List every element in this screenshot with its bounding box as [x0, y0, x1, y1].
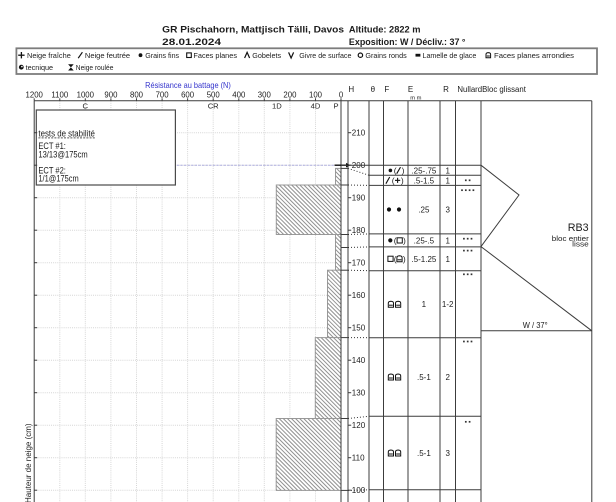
svg-text:140: 140 — [352, 356, 366, 365]
svg-text:210: 210 — [352, 129, 366, 138]
svg-text:4D: 4D — [311, 102, 321, 111]
svg-text:900: 900 — [104, 91, 118, 100]
svg-text:H: H — [348, 85, 354, 94]
svg-text:.5-1: .5-1 — [417, 449, 431, 458]
svg-text:lisse: lisse — [572, 240, 589, 249]
svg-text:RB3: RB3 — [568, 222, 589, 234]
svg-text:400: 400 — [232, 91, 246, 100]
svg-text:.25-.5: .25-.5 — [414, 236, 435, 245]
svg-text:1: 1 — [445, 236, 450, 245]
svg-text:Neige feutrée: Neige feutrée — [85, 51, 130, 60]
svg-text:1: 1 — [422, 300, 427, 309]
svg-text:1100: 1100 — [51, 91, 68, 100]
svg-text:.25-.75: .25-.75 — [411, 166, 436, 175]
svg-text:): ) — [401, 175, 404, 185]
svg-text:Lamelle de glace: Lamelle de glace — [423, 51, 477, 60]
svg-text:GR Pischahorn, Mattjisch Tälli: GR Pischahorn, Mattjisch Tälli, Davos — [162, 24, 344, 35]
svg-text:200: 200 — [283, 91, 297, 100]
svg-text:.5-1.25: .5-1.25 — [411, 255, 436, 264]
svg-text:(: ( — [394, 165, 397, 175]
svg-text:): ) — [402, 165, 405, 175]
svg-text:700: 700 — [156, 91, 170, 100]
svg-text:(: ( — [394, 254, 397, 264]
svg-text:150: 150 — [352, 324, 366, 333]
svg-text:300: 300 — [258, 91, 272, 100]
svg-text:.5-1: .5-1 — [417, 373, 431, 382]
svg-text:170: 170 — [352, 259, 366, 268]
svg-text:0: 0 — [339, 91, 344, 100]
svg-text:500: 500 — [207, 91, 221, 100]
svg-text:Hauteur de neige (cm): Hauteur de neige (cm) — [24, 423, 33, 502]
svg-text:1: 1 — [445, 255, 450, 264]
svg-text:Gobelets: Gobelets — [252, 51, 281, 60]
svg-text:600: 600 — [181, 91, 195, 100]
svg-text:.5-1.5: .5-1.5 — [414, 176, 435, 185]
svg-text:NullardBloc glissant: NullardBloc glissant — [457, 85, 526, 94]
svg-text:): ) — [403, 254, 406, 264]
svg-text:tecnique: tecnique — [26, 63, 53, 72]
svg-text:3: 3 — [445, 206, 450, 215]
svg-text:(: ( — [392, 175, 395, 185]
svg-text:R: R — [443, 85, 449, 94]
svg-text:1000: 1000 — [77, 91, 95, 100]
svg-text:800: 800 — [130, 91, 144, 100]
svg-text:W / 37°: W / 37° — [523, 321, 548, 330]
svg-text:1/1@175cm: 1/1@175cm — [38, 173, 78, 183]
svg-text:Neige fraîche: Neige fraîche — [27, 51, 71, 60]
svg-text:CR: CR — [208, 102, 219, 111]
svg-text:): ) — [403, 235, 406, 245]
svg-text:1-2: 1-2 — [442, 300, 454, 309]
svg-text:Grains fins: Grains fins — [145, 51, 179, 60]
svg-text:160: 160 — [352, 291, 366, 300]
svg-text:Altitude: 2822 m: Altitude: 2822 m — [349, 24, 421, 35]
svg-text:190: 190 — [352, 194, 366, 203]
svg-text:1: 1 — [445, 176, 450, 185]
svg-text:1D: 1D — [272, 102, 282, 111]
svg-text:θ: θ — [371, 85, 376, 94]
svg-text:13/13@175cm: 13/13@175cm — [38, 149, 88, 159]
svg-text:C: C — [82, 102, 88, 111]
svg-text:Givre de surface: Givre de surface — [299, 51, 351, 60]
svg-text:tests de stabilité: tests de stabilité — [38, 128, 95, 138]
svg-text:F: F — [384, 85, 389, 94]
svg-text:.25: .25 — [418, 206, 430, 215]
svg-text:Exposition: W / Décliv.: 37 °: Exposition: W / Décliv.: 37 ° — [349, 36, 466, 47]
svg-text:Neige roulée: Neige roulée — [76, 63, 114, 72]
svg-text:110: 110 — [352, 454, 365, 463]
svg-text:100: 100 — [309, 91, 323, 100]
svg-text:Résistance au battage (N): Résistance au battage (N) — [145, 80, 231, 90]
svg-text:(: ( — [394, 235, 397, 245]
svg-text:1: 1 — [445, 166, 450, 175]
svg-text:28.01.2024: 28.01.2024 — [162, 36, 222, 47]
svg-text:Grains ronds: Grains ronds — [365, 51, 407, 60]
svg-text:1200: 1200 — [26, 91, 44, 100]
svg-text:Faces planes arrondies: Faces planes arrondies — [494, 51, 574, 60]
svg-text:120: 120 — [352, 421, 366, 430]
svg-text:E: E — [408, 85, 413, 94]
svg-text:P: P — [333, 102, 338, 111]
svg-text:3: 3 — [445, 449, 450, 458]
svg-text:m m: m m — [410, 95, 421, 101]
svg-text:2: 2 — [445, 373, 450, 382]
svg-text:100: 100 — [352, 486, 366, 495]
svg-text:Faces planes: Faces planes — [193, 51, 237, 60]
svg-text:130: 130 — [352, 389, 366, 398]
